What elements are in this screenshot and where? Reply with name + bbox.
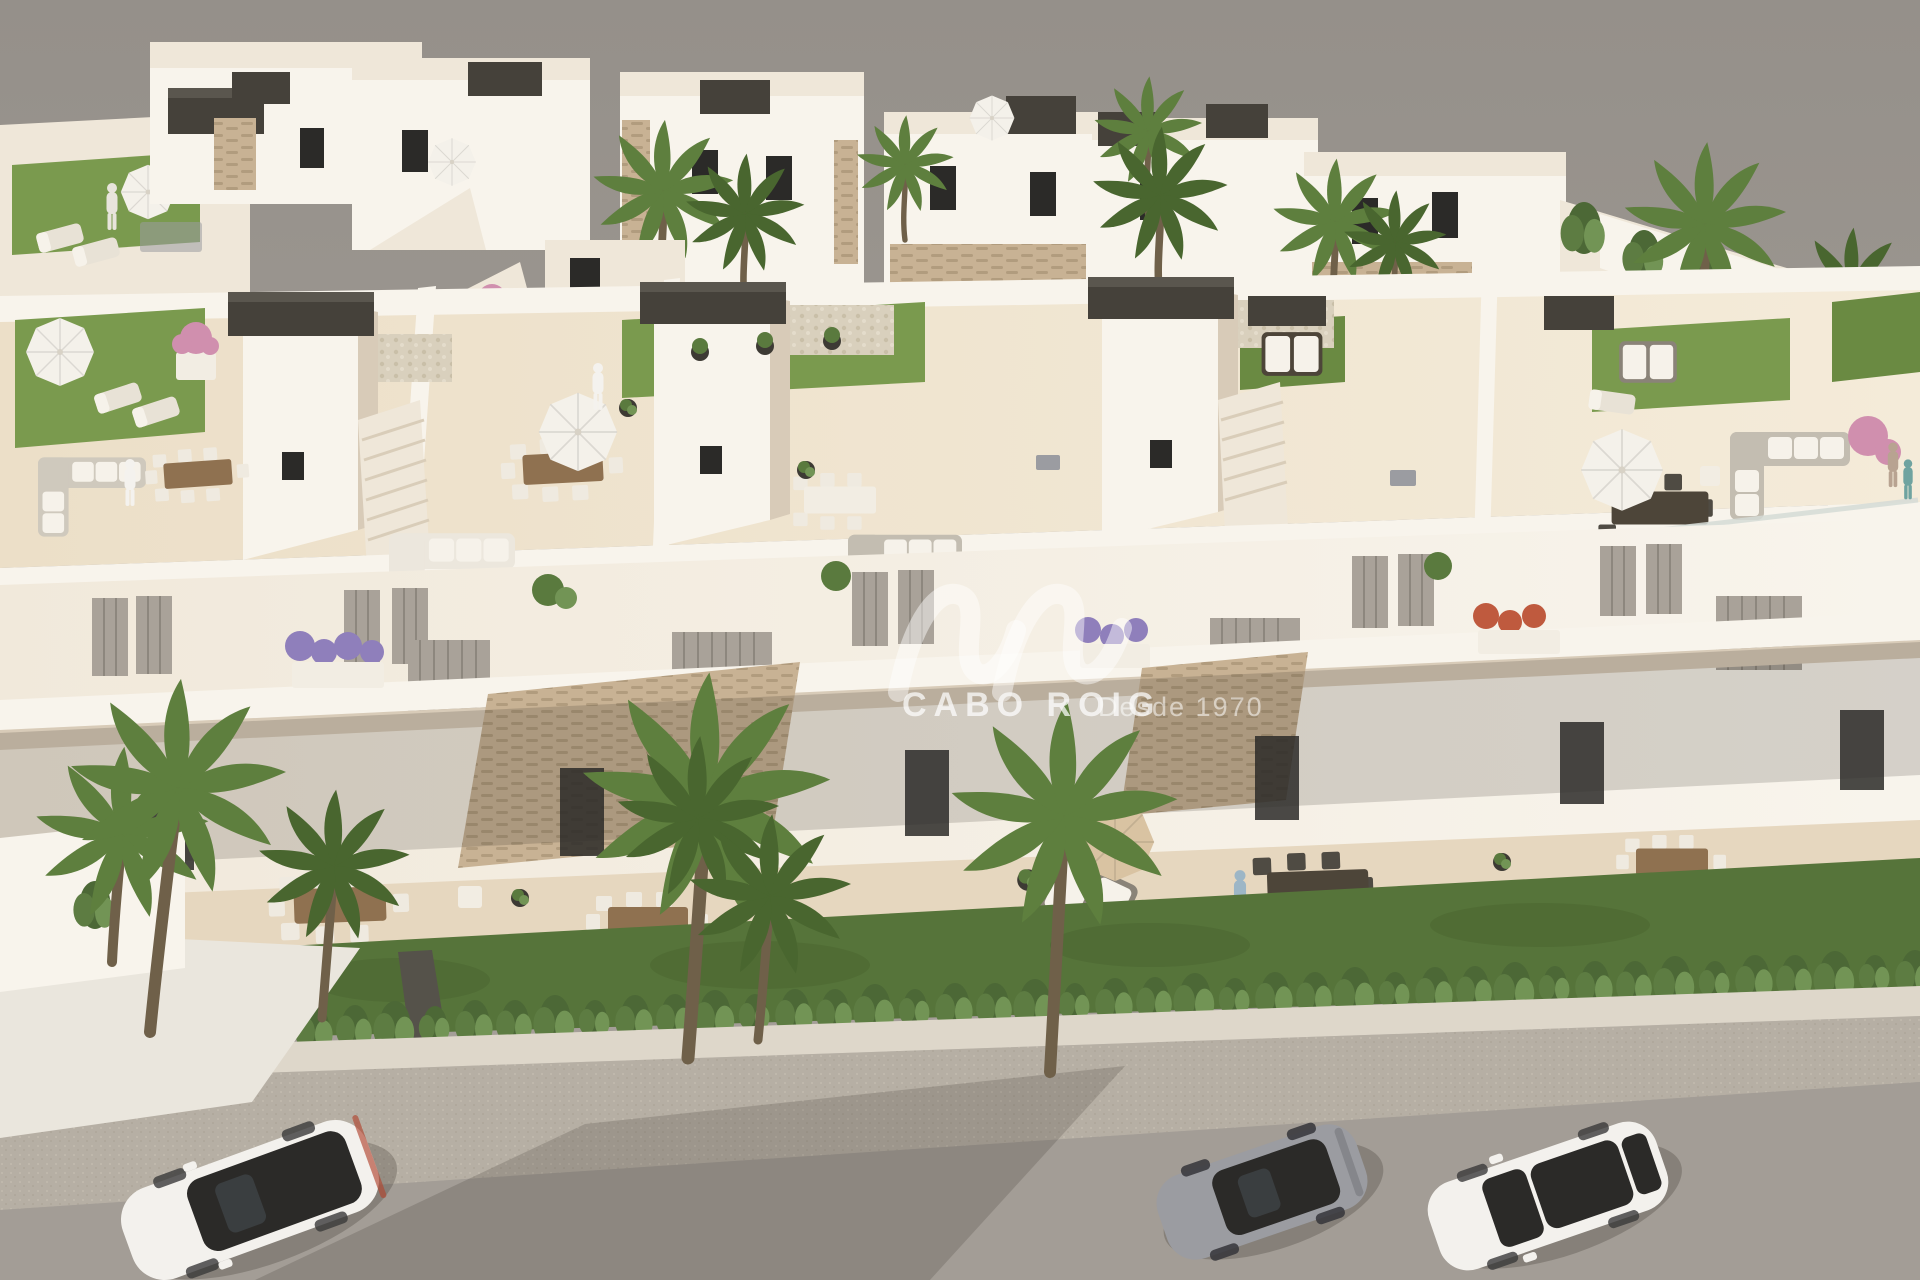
pergola-cap-4 — [1248, 296, 1326, 326]
villa-2 — [352, 58, 590, 250]
render-canvas: CABO ROIG Desde 1970 — [0, 0, 1920, 1280]
watermark-tagline-text: Desde 1970 — [1098, 692, 1264, 722]
aerial-render-scene: CABO ROIG Desde 1970 — [0, 0, 1920, 1280]
stair-tower-2 — [640, 282, 790, 548]
roof-turf-5 — [1832, 292, 1920, 382]
stair-tower-3 — [1088, 277, 1238, 540]
stair-tower-1 — [228, 292, 378, 560]
pergola-cap-5 — [1544, 296, 1614, 330]
